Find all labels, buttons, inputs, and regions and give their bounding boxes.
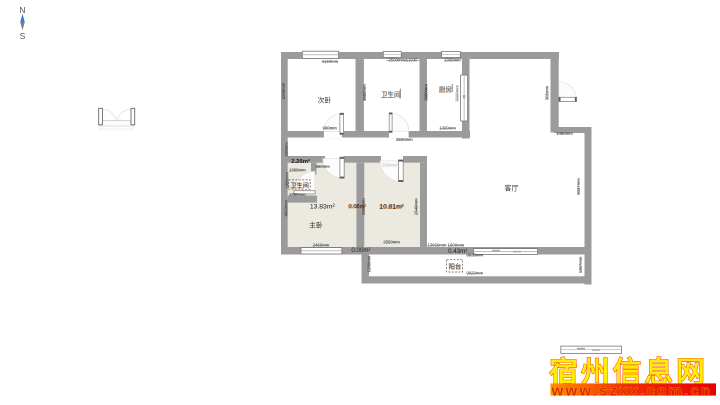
svg-text:10.81m²: 10.81m² bbox=[380, 204, 405, 211]
svg-text:3230mm: 3230mm bbox=[281, 82, 286, 99]
svg-text:1300mm: 1300mm bbox=[444, 58, 461, 63]
svg-text:2.26m²: 2.26m² bbox=[291, 158, 310, 165]
svg-text:1360mm: 1360mm bbox=[289, 192, 306, 197]
svg-text:次卧: 次卧 bbox=[318, 95, 332, 104]
svg-text:1360mm: 1360mm bbox=[289, 167, 306, 172]
svg-text:3600mm: 3600mm bbox=[424, 84, 429, 101]
svg-text:900mm: 900mm bbox=[323, 125, 338, 130]
svg-text:0.08m²: 0.08m² bbox=[349, 204, 367, 210]
svg-text:920mm: 920mm bbox=[284, 142, 289, 157]
svg-text:2500mm&1930: 2500mm&1930 bbox=[388, 58, 418, 63]
svg-text:2550mm: 2550mm bbox=[383, 239, 400, 244]
svg-text:5037mm: 5037mm bbox=[576, 178, 581, 195]
svg-text:385mm: 385mm bbox=[544, 85, 549, 100]
svg-text:4140mm: 4140mm bbox=[321, 59, 338, 64]
svg-text:2540mm: 2540mm bbox=[414, 198, 419, 215]
svg-text:卫生间: 卫生间 bbox=[290, 182, 309, 190]
svg-text:1450mm: 1450mm bbox=[556, 131, 573, 136]
svg-text:2500mm: 2500mm bbox=[396, 137, 413, 142]
svg-text:1900mm: 1900mm bbox=[448, 243, 465, 248]
svg-text:0.43m²: 0.43m² bbox=[448, 248, 467, 255]
svg-text:13660mm: 13660mm bbox=[427, 243, 447, 248]
svg-text:S: S bbox=[20, 31, 26, 41]
svg-text:3500mm: 3500mm bbox=[455, 85, 460, 102]
svg-text:主卧: 主卧 bbox=[309, 221, 323, 230]
svg-text:卫生间: 卫生间 bbox=[381, 90, 401, 99]
svg-text:2500mm: 2500mm bbox=[382, 163, 399, 168]
svg-text:阳台: 阳台 bbox=[448, 262, 461, 271]
svg-text:4020mm: 4020mm bbox=[284, 200, 289, 217]
svg-text:13.83m²: 13.83m² bbox=[310, 204, 336, 211]
svg-text:1357mm: 1357mm bbox=[578, 256, 583, 273]
svg-text:www.szxx.com.cn: www.szxx.com.cn bbox=[551, 382, 713, 399]
svg-text:0.00m²: 0.00m² bbox=[351, 247, 370, 254]
svg-text:2460mm: 2460mm bbox=[313, 243, 330, 248]
svg-text:9920mm: 9920mm bbox=[466, 271, 483, 276]
svg-text:950mm: 950mm bbox=[316, 164, 331, 169]
svg-text:3600mm: 3600mm bbox=[362, 84, 367, 101]
svg-text:N: N bbox=[19, 5, 25, 15]
svg-text:客厅: 客厅 bbox=[504, 183, 518, 192]
svg-text:9920mm: 9920mm bbox=[466, 253, 483, 258]
svg-text:厨房: 厨房 bbox=[439, 84, 452, 93]
svg-text:1280mm: 1280mm bbox=[367, 255, 372, 272]
svg-text:1300mm: 1300mm bbox=[439, 126, 456, 131]
